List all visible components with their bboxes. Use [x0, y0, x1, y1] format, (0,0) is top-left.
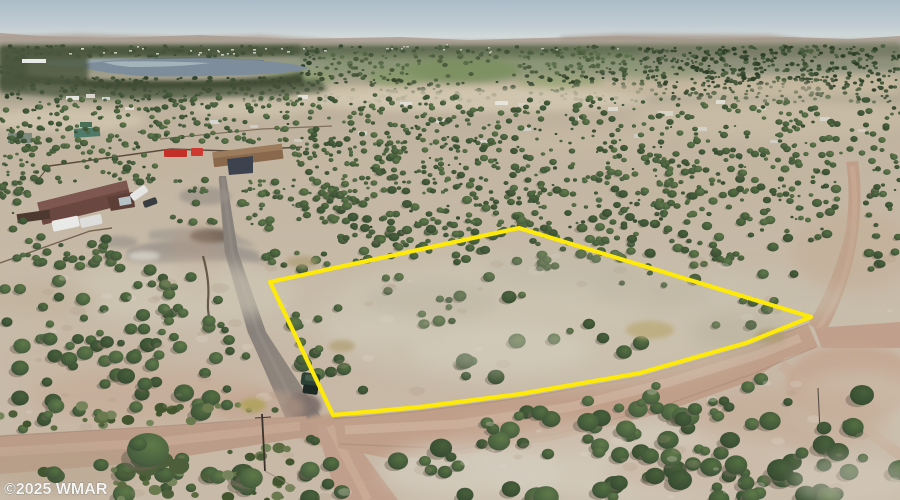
svg-text:©2025 WMAR: ©2025 WMAR — [4, 481, 108, 498]
